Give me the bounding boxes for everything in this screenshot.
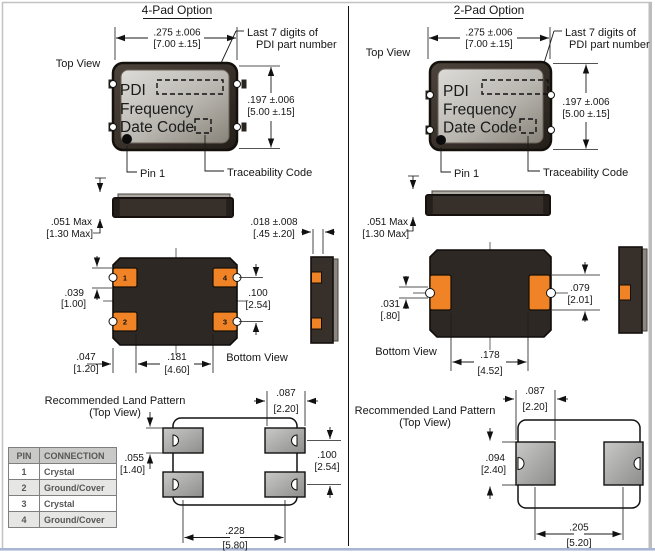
two-pad-top-view: PDI Frequency Date Code — [426, 62, 555, 150]
marking-datecode: Date Code — [120, 119, 194, 136]
svg-text:[2.54]: [2.54] — [245, 300, 270, 311]
svg-text:.275 ±.006: .275 ±.006 — [465, 28, 513, 39]
footer-blue-line — [0, 548, 655, 551]
connection-header: CONNECTION — [40, 448, 117, 464]
land-pad-tr — [265, 428, 305, 453]
land-pad-br — [265, 472, 305, 497]
svg-text:Pin 1: Pin 1 — [454, 168, 479, 180]
svg-text:.051 Max: .051 Max — [367, 217, 408, 228]
svg-text:Last 7 digits of: Last 7 digits of — [565, 27, 637, 39]
svg-text:[1.00]: [1.00] — [61, 299, 86, 310]
svg-text:[2.20]: [2.20] — [273, 404, 298, 415]
pin1-dot — [436, 135, 446, 145]
svg-text:.275 ±.006: .275 ±.006 — [153, 28, 201, 39]
table-row: 4 Ground/Cover — [9, 512, 117, 528]
svg-text:[2.20]: [2.20] — [522, 402, 547, 413]
pin1-leader-2pad: Pin 1 — [441, 147, 479, 180]
svg-text:.094: .094 — [486, 453, 506, 464]
svg-text:Traceability Code: Traceability Code — [543, 167, 628, 179]
dim-pad-height-4pad: .039 [1.00] — [61, 256, 112, 310]
table-row: 2 Ground/Cover — [9, 480, 117, 496]
svg-text:PDI part number: PDI part number — [256, 39, 337, 51]
marking-datecode: Date Code — [443, 120, 517, 137]
two-pad-side-view: .051 Max [1.30 Max] — [362, 176, 550, 240]
marking-brand: PDI — [120, 82, 146, 99]
dim-width-4pad: .275 ±.006 [7.00 ±.15] — [115, 27, 237, 60]
svg-text:[5.00 ±.15]: [5.00 ±.15] — [562, 109, 609, 120]
four-pad-title: 4-Pad Option — [142, 3, 213, 17]
two-pad-land-pattern: Recommended Land Pattern (Top View) .087… — [355, 386, 643, 549]
svg-text:[4.60]: [4.60] — [164, 365, 189, 376]
svg-text:.031: .031 — [381, 299, 401, 310]
svg-text:.018 ±.008: .018 ±.008 — [250, 217, 298, 228]
marking-frequency: Frequency — [443, 102, 516, 119]
dim-pad-pitch-4pad: .100 [2.54] — [239, 264, 271, 335]
svg-text:(Top View): (Top View) — [399, 417, 451, 429]
land-pad-bl — [163, 472, 203, 497]
svg-text:.181: .181 — [167, 352, 187, 363]
four-pad-top-view: PDI Frequency Date Code — [109, 63, 247, 150]
page-border-right — [649, 2, 653, 550]
pin1-dot — [122, 134, 132, 144]
svg-text:.197 ±.006: .197 ±.006 — [562, 97, 610, 108]
dim-height-2pad: .197 ±.006 [5.00 ±.15] — [553, 64, 610, 150]
svg-text:[4.52]: [4.52] — [477, 366, 502, 377]
two-pad-column: 2-Pad Option .275 ±.006 [7.00 ±.15] Top … — [355, 3, 650, 549]
svg-text:[1.20]: [1.20] — [73, 364, 98, 375]
dim-pad-height-2pad: .079 [2.01] — [552, 262, 600, 322]
marking-frequency: Frequency — [120, 101, 193, 118]
svg-text:.228: .228 — [225, 526, 245, 537]
top-view-label-2pad: Top View — [366, 47, 410, 59]
svg-text:.047: .047 — [76, 352, 96, 363]
svg-text:[5.20]: [5.20] — [566, 538, 591, 549]
bottom-view-label-4pad: Bottom View — [226, 352, 288, 364]
svg-text:.197 ±.006: .197 ±.006 — [247, 95, 295, 106]
svg-text:Recommended Land Pattern: Recommended Land Pattern — [45, 395, 186, 407]
svg-text:[2.01]: [2.01] — [567, 295, 592, 306]
dim-width-2pad: .275 ±.006 [7.00 ±.15] — [428, 27, 550, 59]
table-row: 1 Crystal — [9, 464, 117, 480]
svg-text:Pin 1: Pin 1 — [140, 168, 165, 180]
svg-text:.079: .079 — [570, 283, 590, 294]
four-pad-side-view: .051 Max [1.30 Max] — [46, 178, 233, 240]
svg-text:(Top View): (Top View) — [89, 407, 141, 419]
svg-text:Recommended Land Pattern: Recommended Land Pattern — [355, 405, 496, 417]
svg-text:[.45 ±.20]: [.45 ±.20] — [253, 229, 295, 240]
svg-text:[1.30 Max]: [1.30 Max] — [362, 229, 409, 240]
svg-text:[7.00 ±.15]: [7.00 ±.15] — [465, 39, 512, 50]
svg-text:3: 3 — [223, 318, 227, 327]
svg-text:PDI part number: PDI part number — [569, 39, 650, 51]
svg-text:Traceability Code: Traceability Code — [227, 167, 312, 179]
callout-last7-2pad: Last 7 digits of PDI part number — [540, 27, 650, 76]
svg-text:.039: .039 — [65, 288, 85, 299]
pin-header: PIN — [9, 448, 40, 464]
svg-text:.205: .205 — [569, 523, 589, 534]
svg-text:.178: .178 — [480, 350, 500, 361]
land-pad-tl — [163, 428, 203, 453]
mechanical-drawing-page: 4-Pad Option .275 ±.006 [7.00 ±.15] Top … — [0, 0, 655, 552]
svg-text:[1.30 Max]: [1.30 Max] — [46, 229, 93, 240]
svg-text:.087: .087 — [276, 388, 296, 399]
svg-text:.087: .087 — [525, 386, 545, 397]
dim-pad-wrap-4pad: .018 ±.008 [.45 ±.20] — [250, 217, 335, 254]
svg-text:.055: .055 — [125, 453, 145, 464]
marking-brand: PDI — [443, 83, 469, 100]
svg-text:[7.00 ±.15]: [7.00 ±.15] — [153, 39, 200, 50]
four-pad-end-view — [311, 257, 338, 343]
pin-connection-table: PIN CONNECTION 1 Crystal 2 Ground/Cover … — [8, 447, 117, 528]
dim-height-4pad: .197 ±.006 [5.00 ±.15] — [239, 66, 295, 149]
svg-text:[5.00 ±.15]: [5.00 ±.15] — [247, 107, 294, 118]
top-view-label-4pad: Top View — [56, 58, 100, 70]
svg-text:2: 2 — [123, 318, 127, 327]
two-pad-title: 2-Pad Option — [454, 3, 525, 17]
svg-text:Last 7 digits of: Last 7 digits of — [247, 27, 319, 39]
two-pad-end-view — [619, 247, 647, 333]
dim-notch-2pad: .031 [.80] — [381, 276, 428, 322]
svg-text:.100: .100 — [317, 450, 337, 461]
svg-text:.100: .100 — [248, 288, 268, 299]
svg-text:1: 1 — [123, 274, 127, 283]
bottom-view-label-2pad: Bottom View — [375, 346, 437, 358]
table-row: 3 Crystal — [9, 496, 117, 512]
svg-text:[2.54]: [2.54] — [314, 462, 339, 473]
svg-text:[2.40]: [2.40] — [481, 465, 506, 476]
svg-text:[5.80]: [5.80] — [222, 541, 247, 552]
two-pad-bottom-view: Bottom View — [375, 242, 568, 358]
svg-text:[.80]: [.80] — [381, 311, 401, 322]
svg-text:[1.40]: [1.40] — [120, 465, 145, 476]
svg-text:.051 Max: .051 Max — [51, 217, 92, 228]
